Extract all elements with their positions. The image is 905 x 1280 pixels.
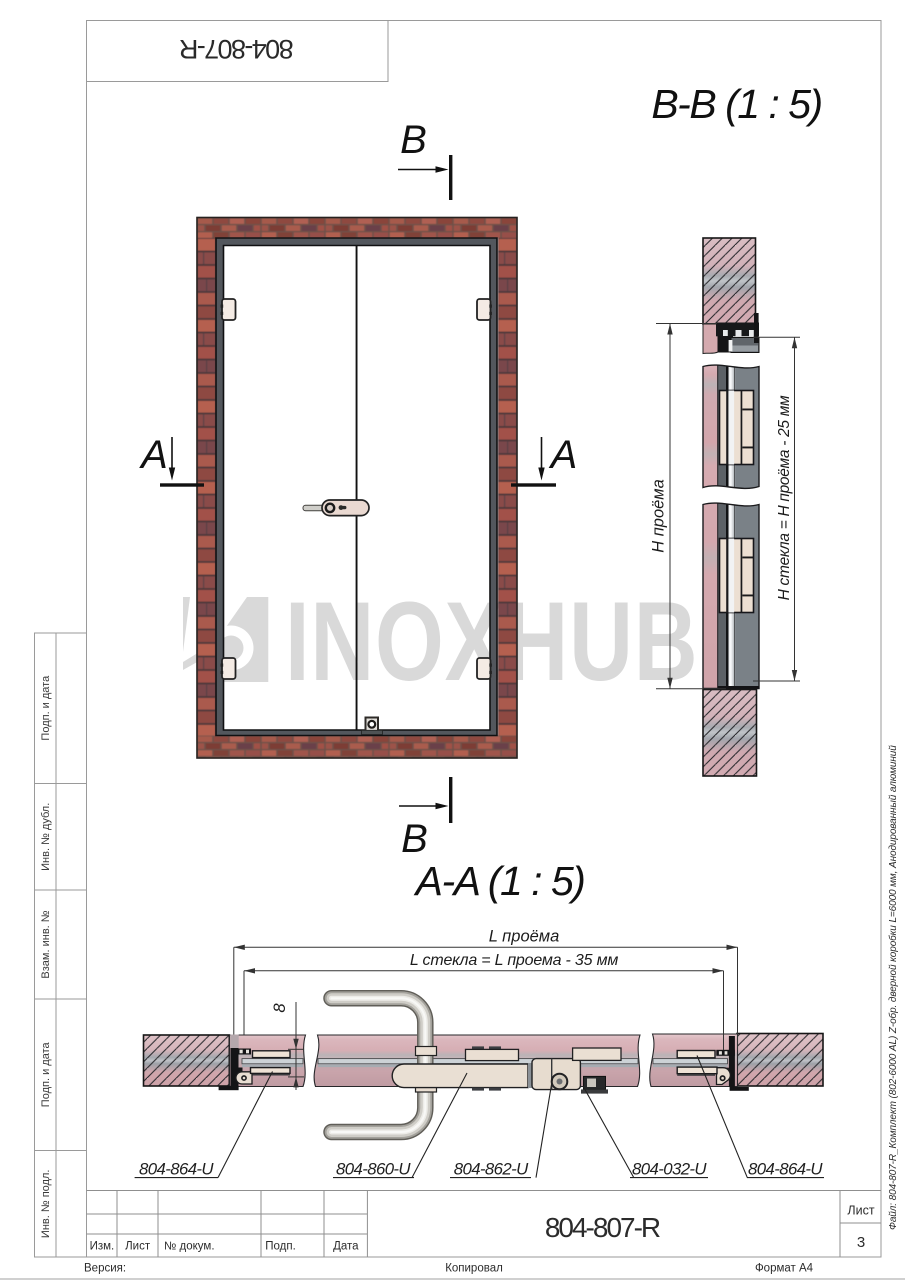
svg-text:3: 3 bbox=[857, 1234, 865, 1251]
svg-text:Лист: Лист bbox=[847, 1204, 874, 1218]
svg-text:Формат А4: Формат А4 bbox=[755, 1263, 814, 1275]
svg-text:Изм.: Изм. bbox=[90, 1241, 115, 1253]
svg-text:Лист: Лист bbox=[125, 1241, 151, 1253]
svg-text:Подп. и дата: Подп. и дата bbox=[40, 1042, 52, 1108]
svg-text:L проёма: L проёма bbox=[489, 928, 560, 946]
svg-text:Н стекла = Н проёма - 25 мм: Н стекла = Н проёма - 25 мм bbox=[776, 395, 793, 600]
svg-text:804-032-U: 804-032-U bbox=[632, 1159, 707, 1178]
svg-text:B: B bbox=[401, 817, 428, 861]
svg-text:B-B (1 : 5): B-B (1 : 5) bbox=[651, 81, 821, 127]
svg-text:Подп. и дата: Подп. и дата bbox=[40, 675, 52, 741]
svg-text:Инв. № дубл.: Инв. № дубл. bbox=[40, 803, 52, 871]
svg-text:Версия:: Версия: bbox=[84, 1263, 126, 1275]
svg-text:A-A (1 : 5): A-A (1 : 5) bbox=[413, 858, 585, 904]
svg-text:B: B bbox=[400, 118, 427, 162]
svg-text:Файл: 804-807-R_Комплект (802-: Файл: 804-807-R_Комплект (802-6000 AL) Z… bbox=[887, 745, 899, 1230]
svg-text:804-862-U: 804-862-U bbox=[454, 1159, 529, 1178]
svg-text:A: A bbox=[139, 433, 168, 477]
svg-text:Инв. № подл.: Инв. № подл. bbox=[40, 1170, 52, 1239]
svg-text:Н проёма: Н проёма bbox=[650, 479, 668, 553]
svg-text:804-807-R: 804-807-R bbox=[545, 1212, 660, 1243]
svg-text:Подп.: Подп. bbox=[265, 1241, 296, 1253]
svg-text:Взам. инв. №: Взам. инв. № bbox=[40, 910, 52, 978]
svg-text:L стекла = L проема - 35 мм: L стекла = L проема - 35 мм bbox=[410, 952, 618, 969]
svg-text:804-864-U: 804-864-U bbox=[748, 1159, 823, 1178]
svg-text:804-864-U: 804-864-U bbox=[139, 1159, 214, 1178]
svg-text:8: 8 bbox=[271, 1003, 289, 1013]
svg-text:№ докум.: № докум. bbox=[164, 1241, 215, 1253]
svg-text:Копировал: Копировал bbox=[445, 1263, 503, 1275]
svg-text:A: A bbox=[549, 433, 578, 477]
svg-text:804-807-R: 804-807-R bbox=[179, 34, 293, 64]
svg-text:804-860-U: 804-860-U bbox=[336, 1159, 411, 1178]
svg-text:Дата: Дата bbox=[333, 1241, 359, 1253]
